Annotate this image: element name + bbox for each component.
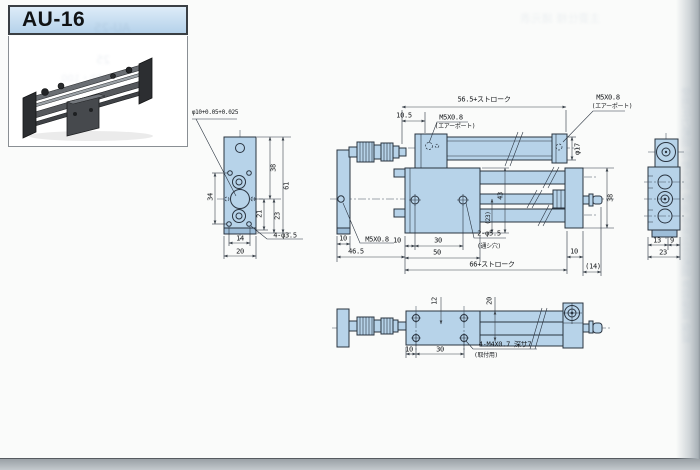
dim-label: 13: [653, 238, 661, 245]
dim-label: 38: [271, 164, 278, 172]
dim-label: (エアーポート): [435, 124, 475, 130]
dim-label: 43: [498, 192, 505, 200]
dim-label: 23: [275, 212, 282, 220]
dim-label: 10: [393, 238, 401, 245]
dim-label: 20: [236, 249, 244, 256]
dim-label: 30: [436, 347, 444, 354]
technical-drawing: [0, 0, 700, 470]
dim-label: M5X0.8: [596, 95, 620, 102]
dim-label: (23): [486, 211, 492, 224]
dim-label: φ17: [575, 143, 582, 155]
dim-label: 38: [608, 194, 615, 202]
dim-label: 23: [659, 250, 667, 257]
dim-label: φ10+0.05+0.025: [192, 110, 238, 116]
dim-label: M5X0.8: [365, 237, 389, 244]
dim-label: 20: [487, 297, 494, 305]
catalog-page: AU-252550・100使用圧力範囲 作動方式 給油 使用温度範囲 許容速度 …: [0, 0, 698, 459]
dim-label: 4-M4X0.7 深サ7: [479, 342, 532, 349]
dim-label: 21: [257, 210, 264, 218]
dim-label: 10: [405, 347, 413, 354]
dim-label: (通シ穴): [477, 244, 501, 250]
dim-label: 12: [432, 297, 439, 305]
dim-label: 2-φ5.5: [477, 231, 501, 238]
dim-label: 61: [284, 182, 291, 190]
dim-label: 50: [433, 250, 441, 257]
dim-label: 9: [670, 238, 674, 245]
dim-label: 14: [236, 236, 244, 243]
dim-label: 10: [339, 236, 347, 243]
dim-label: (取付用): [474, 353, 498, 359]
dim-label: 4-φ3.5: [273, 233, 297, 240]
dim-label: (14): [585, 264, 601, 271]
dim-label: 56.5+ストローク: [457, 97, 510, 104]
dim-label: (エアーポート): [592, 104, 632, 110]
dim-label: M5X0.8: [439, 115, 463, 122]
dim-label: 66+ストローク: [469, 262, 514, 269]
dim-label: 10.5: [396, 113, 412, 120]
dim-label: 10: [570, 249, 578, 256]
dim-label: 30: [434, 238, 442, 245]
side-view: [644, 133, 686, 260]
dim-label: 34: [208, 193, 215, 201]
front-view: [330, 107, 625, 276]
plan-view: [332, 297, 612, 358]
dim-label: 46.5: [348, 249, 364, 256]
